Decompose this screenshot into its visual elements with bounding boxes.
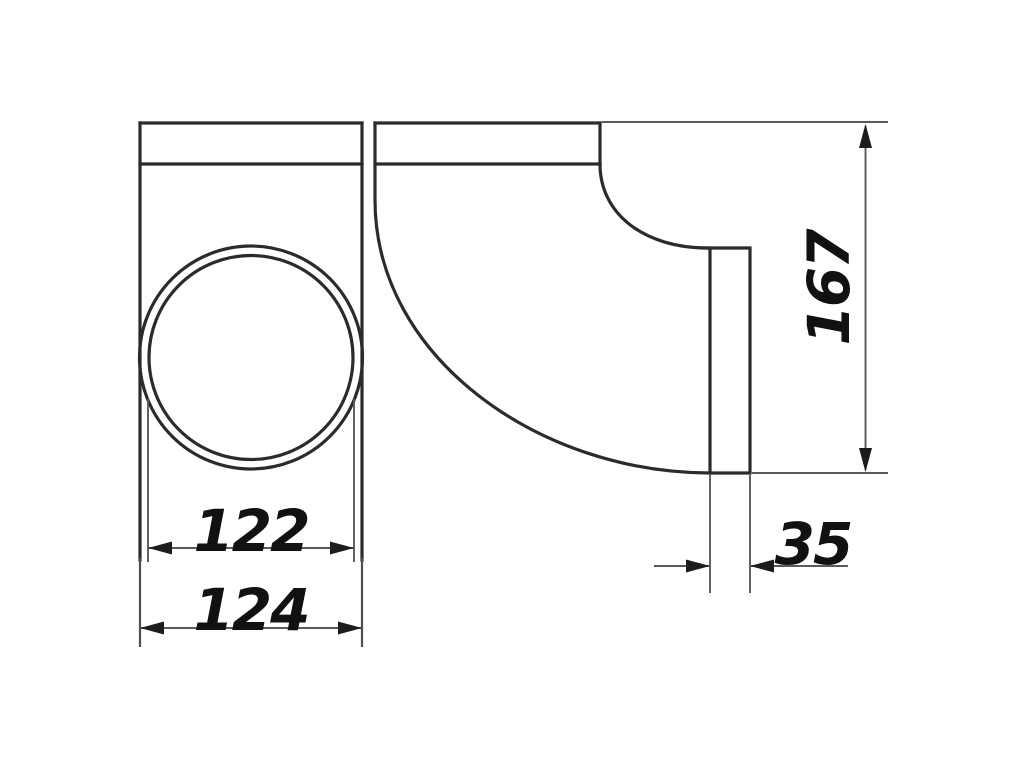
arrow-left-icon <box>140 622 164 635</box>
dim-35-label: 35 <box>775 510 852 578</box>
dim-122-label: 122 <box>193 497 308 565</box>
technical-drawing-canvas: 122 124 <box>0 0 1024 768</box>
side-socket-outline <box>708 248 750 473</box>
dim-124-label: 124 <box>193 576 308 644</box>
front-view: 122 124 <box>140 123 363 647</box>
arrow-left-icon <box>750 560 774 573</box>
arrow-right-icon <box>338 622 362 635</box>
arrow-down-icon <box>859 448 872 472</box>
arrow-up-icon <box>859 124 872 148</box>
dim-167-label: 167 <box>795 228 863 346</box>
duct-circle-outer <box>140 246 363 469</box>
elbow-inner-curve <box>600 164 708 248</box>
side-view: 167 35 <box>375 122 888 593</box>
duct-elbow-technical-drawing: 122 124 <box>0 0 1024 768</box>
arrow-right-icon <box>330 542 354 555</box>
arrow-left-icon <box>148 542 172 555</box>
arrow-right-icon <box>686 560 710 573</box>
dimension-167: 167 <box>602 122 888 473</box>
dimension-35: 35 <box>654 475 851 593</box>
dimension-124: 124 <box>140 576 362 644</box>
dimension-122: 122 <box>148 399 354 565</box>
elbow-outer-curve <box>375 123 710 473</box>
duct-circle-inner <box>149 256 353 460</box>
